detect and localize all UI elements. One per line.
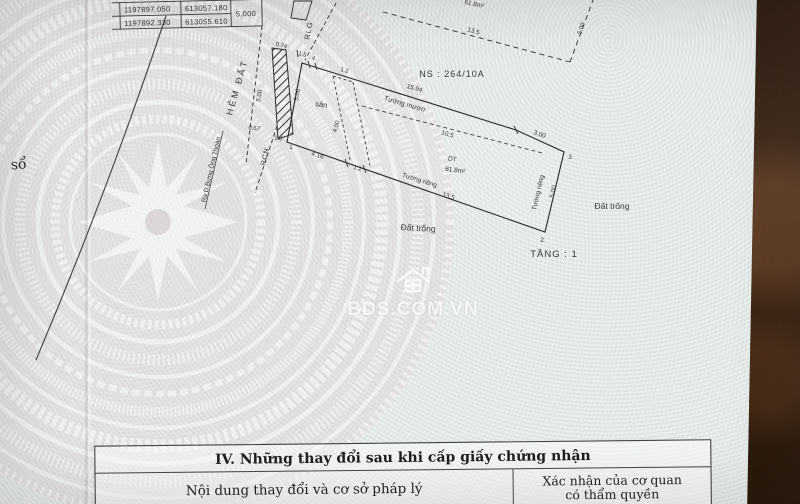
coord-x2: 1197892.330: [124, 18, 171, 28]
changes-table: IV. Những thay đổi sau khi cấp giấy chứn…: [95, 440, 712, 504]
plan-label: 15.94: [406, 83, 424, 94]
plan-label: 1.5: [297, 51, 307, 59]
plan-label: TẦNG : 1: [530, 249, 578, 260]
cadastral-plan: 1197897.050 613057.180 1197892.330 61305…: [0, 0, 800, 504]
plan-label: HẺM ĐẤT: [223, 58, 250, 117]
plan-label: 5.00: [549, 184, 559, 198]
plan-label: NS : 264/10A: [419, 69, 485, 79]
plan-label: 4: [311, 56, 316, 63]
changes-table-col-left: Nội dung thay đổi và cơ sở pháp lý: [186, 481, 423, 499]
plan-label: 13.5: [466, 27, 480, 37]
plan-label: Đất trống: [400, 222, 436, 234]
bds-watermark-text: BDS.COM.VN: [338, 299, 488, 321]
certificate-photo: 1197897.050 613057.180 1197892.330 61305…: [0, 0, 800, 504]
plan-label: 61.8m²: [464, 0, 486, 10]
plan-label: 1.5: [274, 135, 284, 142]
plan-label: RLG: [302, 21, 314, 41]
street-curve: [36, 16, 166, 360]
plan-label: 2: [540, 237, 544, 244]
plan-label: 1: [289, 144, 293, 151]
parcel-outline: [287, 63, 564, 232]
coord-y1: 613057.180: [185, 3, 228, 13]
plan-label: 5.00: [576, 21, 587, 35]
coord-distance: 5.000: [236, 9, 256, 18]
changes-table-col-right-line2: có thẩm quyền: [565, 486, 659, 502]
plan-label: DT: [447, 155, 457, 163]
plan-label: 1.2: [339, 67, 349, 75]
house-icon: [381, 266, 445, 294]
coordinate-table: 1197897.050 613057.180 1197892.330 61305…: [112, 0, 263, 29]
plan-label: sổ: [10, 154, 27, 173]
plan-label: Đất trống: [595, 201, 630, 211]
coord-x1: 1197897.050: [124, 4, 171, 14]
plan-label: RCN: [260, 147, 271, 166]
setback-box: [291, 1, 312, 20]
plan-label: sân: [315, 99, 328, 110]
plan-label: 3: [568, 154, 572, 161]
bds-watermark: BDS.COM.VN: [338, 266, 488, 321]
plan-label: 5.00: [255, 89, 264, 103]
coord-y2: 613055.610: [185, 17, 228, 27]
plan-label: Ra Đ.Bưng Ông Thoàn: [199, 136, 223, 203]
plan-label: 1.2: [352, 165, 362, 173]
